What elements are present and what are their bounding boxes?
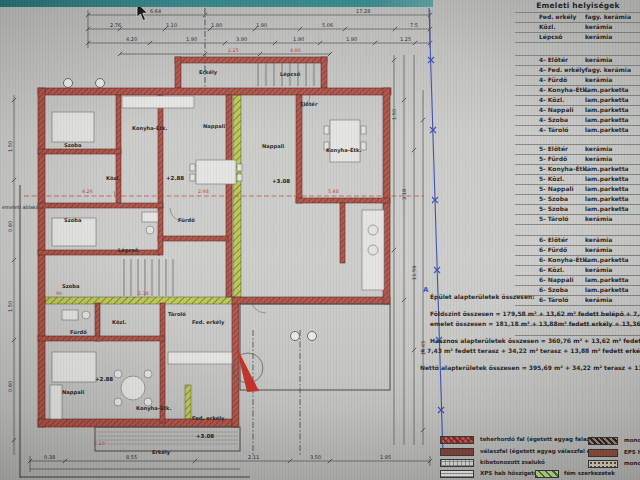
room-label: Nappali: [203, 123, 226, 130]
table-row: 6- Konyha-Étk.lam.parketta: [515, 255, 640, 265]
dim-label: 1.90: [293, 36, 304, 42]
room-label: Konyha-Étk.: [136, 405, 171, 412]
deck-lines-bottom: [97, 432, 238, 444]
dim-label: 1.50: [391, 109, 397, 120]
room-label: Közl.: [112, 319, 126, 325]
left-note: emeleti ablakok: [2, 204, 42, 210]
table-row: 6- Nappalilam.parketta: [515, 275, 640, 285]
table-row: 5- Közl.lam.parketta: [515, 174, 640, 184]
area-summary: Épület alapterületek összesen: Földszint…: [420, 293, 640, 373]
dim-label: 1.90: [256, 22, 267, 28]
table-row: 4- Közl.lam.parketta: [515, 95, 640, 105]
table-row: 6- Előtérkerámia: [515, 235, 640, 245]
dim-label: 0.90: [7, 381, 13, 392]
level-mark: +2.88: [95, 376, 113, 382]
table-row: 5- Előtérkerámia: [515, 144, 640, 154]
dimension-chains-right: [394, 55, 423, 445]
level-marks: +2.88 +3.08 +2.88 +3.08: [95, 175, 290, 439]
room-label: Szoba: [62, 283, 80, 289]
table-row: 4- Nappalilam.parketta: [515, 105, 640, 115]
dimension-labels-bottom: 0.38 8.55 2.11 3.50 1.95: [44, 454, 391, 460]
legend-label: fém szerkezetek: [564, 470, 615, 476]
room-label: Közl.: [106, 175, 120, 181]
summary-line: Hasznos alapterületek összesen = 360,76 …: [430, 336, 640, 346]
legend-label: kibetonozott zsalukő: [480, 459, 545, 465]
legend-swatch-xps: [440, 470, 474, 478]
table-row: 5- Nappalilam.parketta: [515, 184, 640, 194]
room-label: Szoba: [64, 142, 82, 148]
dim-label: 1.25: [400, 36, 411, 42]
dim-label: 6.64: [150, 8, 161, 14]
legend-swatch-loadbearing: [440, 436, 474, 444]
table-row: 5- Fürdőkerámia: [515, 154, 640, 164]
table-row: 4- Fed. erkélyfagy. kerámia: [515, 65, 640, 75]
dimension-chains-top: [88, 10, 430, 54]
table-row: 5- Konyha-Étk.lam.parketta: [515, 164, 640, 174]
dim-label: 1.50: [7, 141, 13, 152]
table-row: 5- Szobalam.parketta: [515, 194, 640, 204]
level-mark: +2.88: [166, 175, 184, 181]
table-row: 4- Előtérkerámia: [515, 55, 640, 65]
dim-label: 3.18: [401, 189, 407, 200]
room-label: Nappali: [262, 143, 285, 150]
room-label: Szoba: [64, 217, 82, 223]
room-label: Konyha-Étk.: [132, 125, 167, 132]
room-label: Fürdő: [178, 217, 195, 223]
legend-label: válaszfal (égetett agyag válaszfal elem): [480, 448, 604, 454]
screen: 6.64 17.28 2.76 1.10 1.90 1.90 5.06 7.5 …: [0, 0, 640, 480]
legend-label: EPS h: [624, 449, 640, 455]
summary-line: Földszint összesen = 179,58 m² + 13,62 m…: [430, 309, 640, 319]
room-label: Erkély: [199, 69, 218, 76]
room-label: Tároló: [168, 311, 186, 317]
material-legend: teherhordó fal (égetett agyag falazóelem…: [440, 433, 640, 480]
dim-label-red: 90: [56, 291, 62, 296]
dim-label-red: 2.25: [228, 48, 239, 53]
boundary-line: [428, 8, 444, 455]
room-label: Fed. erkély: [192, 415, 225, 422]
dim-label: 1.95: [380, 454, 391, 460]
dim-label: 1.50: [7, 301, 13, 312]
dim-label-red: 1.38: [138, 291, 149, 296]
dim-label: 0.38: [44, 454, 55, 460]
dim-label: 1.90: [186, 36, 197, 42]
dim-label: 1.10: [166, 22, 177, 28]
table-row: 6- Fürdőkerámia: [515, 245, 640, 255]
summary-line: emelet összesen = 181,18 m² + 13,88m² fe…: [430, 319, 640, 329]
legend-label: mono: [624, 437, 640, 443]
dim-label: 8.55: [126, 454, 137, 460]
table-row: 4- Konyha-Étk.lam.parketta: [515, 85, 640, 95]
dim-label: 4.20: [126, 36, 137, 42]
legend-swatch-formwork: [440, 459, 474, 467]
dimension-labels-left: 1.50 0.90 1.50 0.90: [7, 141, 13, 392]
level-mark: +3.08: [196, 433, 214, 439]
dimension-labels-top-red: 2.25 4.86: [228, 48, 301, 53]
level-mark: +3.08: [272, 178, 290, 184]
dim-label: 1.90: [346, 36, 357, 42]
dim-label: 2.11: [248, 454, 259, 460]
legend-swatch-right-3: [588, 460, 618, 468]
table-row: 4- Tárolólam.parketta: [515, 125, 640, 136]
summary-title: Épület alapterületek összesen:: [430, 293, 640, 300]
dim-label: 3.90: [236, 36, 247, 42]
table-row: 5- Tárolókerámia: [515, 214, 640, 225]
room-label: Előtér: [300, 101, 318, 107]
room-label: Fed. erkély: [192, 319, 225, 326]
room-label: Nappali: [62, 389, 85, 396]
dim-label: 1.90: [211, 22, 222, 28]
dim-label-red: 4.26: [82, 189, 93, 194]
table-row: 5- Szobalam.parketta: [515, 204, 640, 214]
dim-label: 0.90: [7, 221, 13, 232]
furniture: [50, 96, 384, 419]
table-row: 6- Közl.kerámia: [515, 265, 640, 275]
room-label: Lépcső: [118, 247, 139, 254]
dim-label: 2.76: [110, 22, 121, 28]
table-row: Lépcsőkerámia: [515, 32, 640, 43]
window-top-bar: [0, 0, 433, 7]
dimension-chain-bottom: [30, 456, 430, 472]
dim-label-red: 2.98: [198, 189, 209, 194]
table-rows: Fed. erkélyfagy. kerámia Közl.kerámia Lé…: [515, 12, 640, 336]
room-label: Konyha-Étk.: [326, 147, 361, 154]
room-label: Lépcső: [280, 71, 301, 78]
legend-swatch-right-2: [588, 449, 618, 457]
dim-label-red: 4.86: [290, 48, 301, 53]
room-labels: Erkély Lépcső Szoba Konyha-Étk. Nappali …: [62, 69, 361, 456]
dimension-labels-top: 6.64 17.28 2.76 1.10 1.90 1.90 5.06 7.5 …: [110, 8, 418, 42]
legend-label: mono: [624, 460, 640, 466]
room-label: Erkély: [152, 449, 171, 456]
legend-swatch-metal: [535, 470, 559, 478]
table-row: 4- Szobalam.parketta: [515, 115, 640, 125]
table-row: 4- Fürdőkerámia: [515, 75, 640, 85]
dim-label: 5.06: [322, 22, 333, 28]
dim-label-red: 2.10: [94, 441, 105, 446]
dim-label: 3.50: [310, 454, 321, 460]
table-row: Közl.kerámia: [515, 22, 640, 32]
summary-line: + 7,43 m² fedett terasz + 34,22 m² teras…: [420, 346, 640, 356]
room-label: Fürdő: [70, 329, 87, 335]
dim-label: 11.59: [411, 266, 417, 280]
table-title: Emeleti helyiségek: [519, 1, 637, 10]
legend-swatch-partition: [440, 448, 474, 456]
dim-label-red: 5.48: [328, 189, 339, 194]
table-row: Fed. erkélyfagy. kerámia: [515, 12, 640, 22]
dim-label: 17.28: [356, 8, 370, 14]
summary-line: Nettó alapterületek összesen = 395,69 m²…: [420, 363, 640, 373]
dim-label: 7.5: [410, 22, 418, 28]
legend-swatch-right-1: [588, 437, 618, 445]
